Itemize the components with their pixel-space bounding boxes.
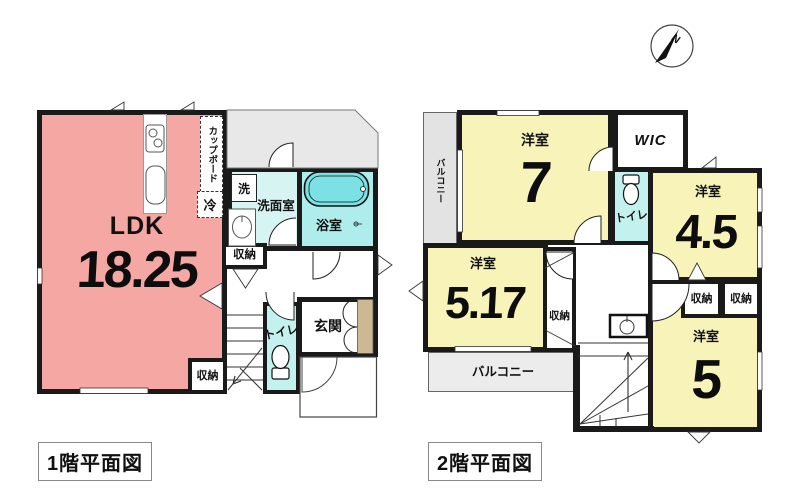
storage-c-label: 収納 xyxy=(543,308,576,324)
storage-hall-label: 収納 xyxy=(222,245,267,267)
room-bathroom xyxy=(297,167,378,251)
room-5-size: 5 xyxy=(674,344,738,414)
porch-label: ポーチ xyxy=(306,368,372,384)
wic-label: WIC xyxy=(613,125,688,155)
room-7-label: 洋室 xyxy=(505,131,565,148)
storage-b-label: 収納 xyxy=(721,290,761,308)
room-5-17-label: 洋室 xyxy=(453,255,513,271)
room-5-label: 洋室 xyxy=(676,328,736,344)
ldk-size: 18.25 xyxy=(55,238,218,302)
fridge-box: 冷 xyxy=(197,191,223,218)
storage-ldk-label: 収納 xyxy=(188,367,227,385)
compass-n-label: N xyxy=(669,32,683,46)
room-4-5-label: 洋室 xyxy=(678,183,738,199)
room-5-17-size: 5.17 xyxy=(425,271,544,333)
washer-label: 洗 xyxy=(238,180,250,197)
room-toilet-2f xyxy=(611,168,652,245)
room-7-size: 7 xyxy=(493,147,577,219)
title-1f-text: 1階平面図 xyxy=(47,447,143,476)
fridge-label: 冷 xyxy=(203,195,216,214)
approach-area xyxy=(227,110,378,168)
bathroom-label: 浴室 xyxy=(306,217,352,233)
cupboard-label: カップボード xyxy=(207,126,217,183)
stairs-1f xyxy=(227,315,263,390)
compass-icon: N xyxy=(651,25,693,67)
hall-basin-2f xyxy=(610,315,647,337)
balcony-bottom-label: バルコニー xyxy=(428,363,578,381)
storage-c xyxy=(543,247,576,352)
kitchen-island xyxy=(143,114,167,214)
storage-a-label: 収納 xyxy=(681,290,722,308)
stairs-2f xyxy=(578,343,648,426)
entrance-label: 玄関 xyxy=(305,317,351,335)
title-2f-text: 2階平面図 xyxy=(437,447,533,476)
washroom-label: 洗面室 xyxy=(250,199,302,214)
ldk-label: LDK xyxy=(77,212,197,240)
porch xyxy=(300,357,377,417)
title-2f: 2階平面図 xyxy=(428,442,542,481)
hall-wall-left xyxy=(573,345,580,432)
room-toilet-1f xyxy=(263,302,300,394)
cupboard-box: カップボード xyxy=(200,116,223,192)
room-4-5-size: 4.5 xyxy=(658,200,753,266)
washer-box: 洗 xyxy=(231,174,257,202)
balcony-left-label: バルコニー xyxy=(428,140,452,220)
title-1f: 1階平面図 xyxy=(38,442,152,481)
outer-wall-segment xyxy=(373,246,378,302)
hall-wall-bottom xyxy=(575,426,654,432)
